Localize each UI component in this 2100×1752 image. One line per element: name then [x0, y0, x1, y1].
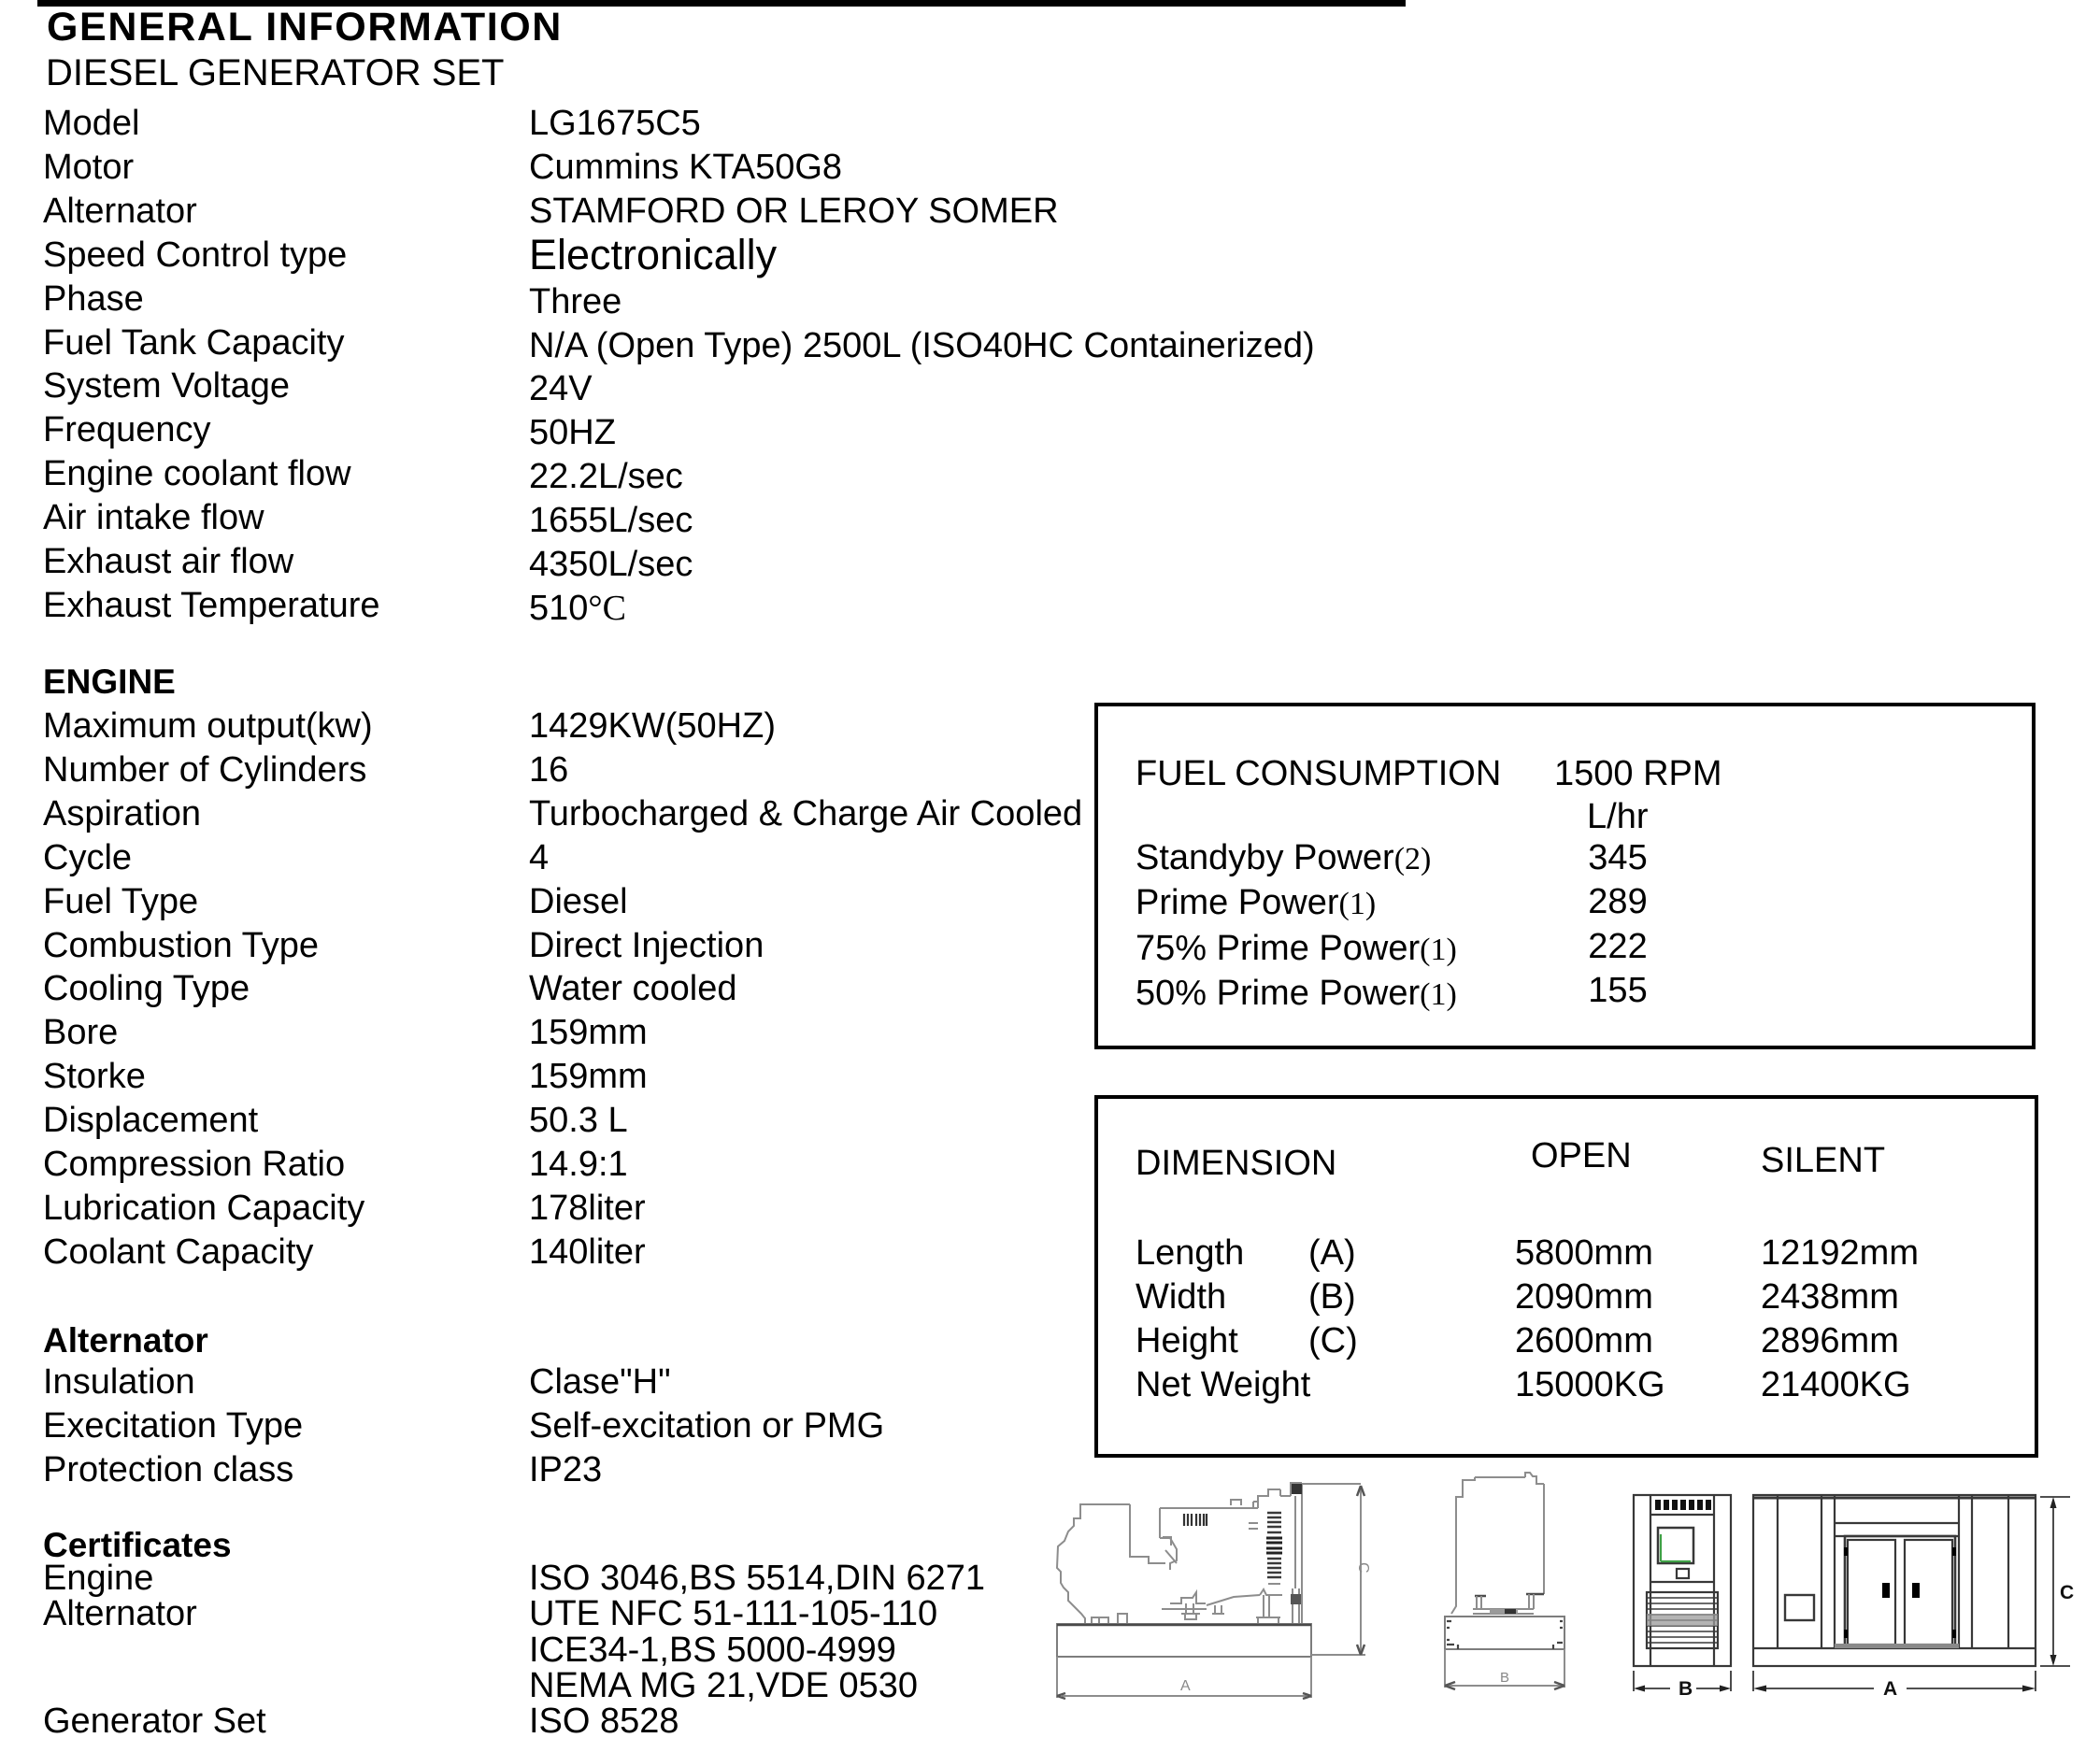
- svg-text:B: B: [1500, 1670, 1509, 1686]
- svg-text:A: A: [1180, 1678, 1191, 1694]
- svg-text:C: C: [1355, 1562, 1371, 1574]
- svg-text:C: C: [2060, 1582, 2074, 1603]
- svg-text:A: A: [1883, 1678, 1897, 1700]
- svg-text:B: B: [1679, 1678, 1693, 1700]
